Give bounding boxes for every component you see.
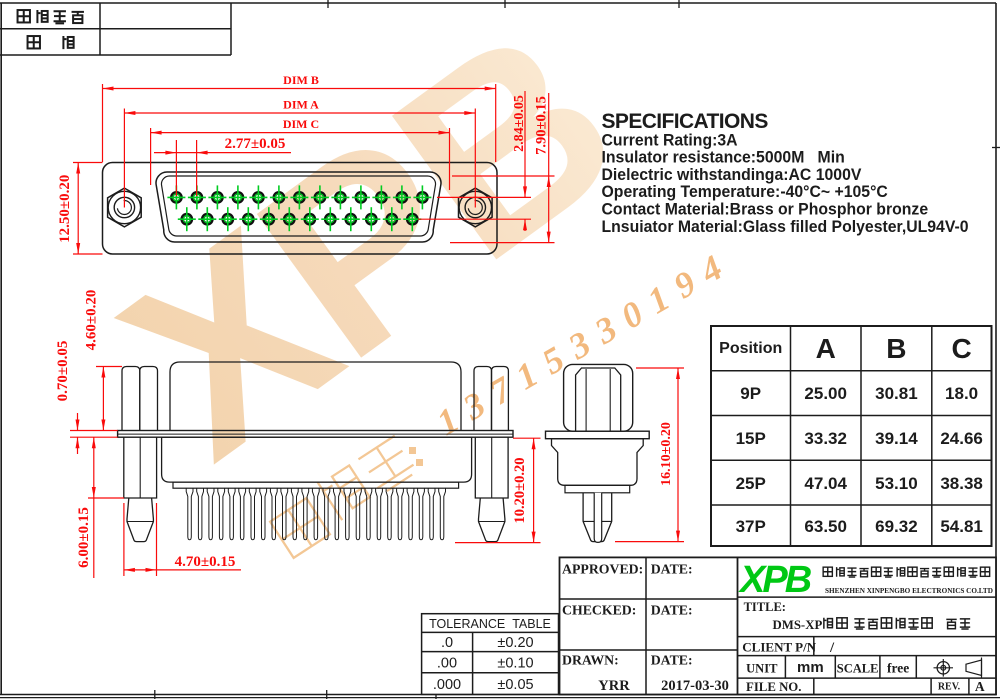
svg-text:12.50±0.20: 12.50±0.20 <box>57 175 73 243</box>
svg-text:/: / <box>829 640 835 656</box>
svg-text:TITLE:: TITLE: <box>744 600 786 614</box>
svg-text:16.10±0.20: 16.10±0.20 <box>659 422 674 486</box>
svg-text:6.00±0.15: 6.00±0.15 <box>76 507 92 568</box>
svg-text:53.10: 53.10 <box>875 474 918 493</box>
svg-text:33.32: 33.32 <box>804 429 847 448</box>
svg-text:2.77±0.05: 2.77±0.05 <box>225 136 286 152</box>
svg-text:DATE:: DATE: <box>651 562 693 577</box>
svg-text:C: C <box>951 333 971 364</box>
svg-text:25.00: 25.00 <box>804 384 847 403</box>
svg-text:25P: 25P <box>736 474 766 493</box>
svg-text:TOLERANCE TABLE: TOLERANCE TABLE <box>429 617 551 631</box>
svg-text:47.04: 47.04 <box>804 474 847 493</box>
svg-text:Current Rating:3A: Current Rating:3A <box>602 131 738 150</box>
svg-text:DMS-XP: DMS-XP <box>773 618 823 632</box>
svg-text:30.81: 30.81 <box>875 384 918 403</box>
svg-text:±0.20: ±0.20 <box>497 635 533 651</box>
svg-text:YRR: YRR <box>598 678 630 694</box>
svg-text:2.84±0.05: 2.84±0.05 <box>512 95 527 152</box>
svg-text:DIM C: DIM C <box>283 117 319 131</box>
svg-text:A: A <box>975 679 985 694</box>
svg-text:18.0: 18.0 <box>945 384 978 403</box>
svg-text:DIM B: DIM B <box>283 73 319 87</box>
svg-text:CLIENT P/N: CLIENT P/N <box>742 640 816 655</box>
svg-text:39.14: 39.14 <box>875 429 918 448</box>
svg-text:free: free <box>887 661 909 676</box>
svg-text:37P: 37P <box>736 517 766 536</box>
svg-text:38.38: 38.38 <box>940 474 983 493</box>
svg-text:Contact Material:Brass or Phos: Contact Material:Brass or Phosphor bronz… <box>602 200 929 219</box>
svg-text:4.60±0.20: 4.60±0.20 <box>84 290 100 351</box>
svg-text:A: A <box>816 333 836 364</box>
svg-text:DRAWN:: DRAWN: <box>562 653 619 668</box>
svg-text:XPB: XPB <box>738 559 812 601</box>
svg-text:±0.05: ±0.05 <box>497 677 533 693</box>
svg-text:24.66: 24.66 <box>940 429 983 448</box>
svg-text:Dielectric withstandinga:AC 10: Dielectric withstandinga:AC 1000V <box>602 165 862 184</box>
svg-text:SCALE: SCALE <box>837 662 879 676</box>
svg-text:54.81: 54.81 <box>940 517 983 536</box>
svg-text:.00: .00 <box>437 656 457 672</box>
svg-text:B: B <box>886 333 906 364</box>
svg-text:±0.10: ±0.10 <box>497 656 533 672</box>
svg-text:.000: .000 <box>433 677 461 693</box>
svg-text:10.20±0.20: 10.20±0.20 <box>512 458 528 524</box>
svg-text:.0: .0 <box>441 635 453 651</box>
svg-text:Position: Position <box>719 340 782 357</box>
svg-text:7.90±0.15: 7.90±0.15 <box>534 96 550 155</box>
svg-text:15P: 15P <box>736 429 766 448</box>
svg-text:69.32: 69.32 <box>875 517 918 536</box>
svg-text:CHECKED:: CHECKED: <box>562 603 636 618</box>
svg-text:9P: 9P <box>740 384 761 403</box>
svg-text:DIM A: DIM A <box>283 98 319 112</box>
svg-text:UNIT: UNIT <box>746 662 778 676</box>
svg-text:SHENZHEN XINPENGBO ELECTRONICS: SHENZHEN XINPENGBO ELECTRONICS CO.LTD <box>825 587 993 595</box>
svg-text:REV.: REV. <box>938 682 961 693</box>
svg-text:APPROVED:: APPROVED: <box>562 562 643 577</box>
svg-text:DATE:: DATE: <box>651 653 693 668</box>
svg-text:mm: mm <box>797 659 824 676</box>
svg-text:SPECIFICATIONS: SPECIFICATIONS <box>602 110 769 133</box>
svg-text:Lnsuiator Material:Glass fille: Lnsuiator Material:Glass filled Polyeste… <box>602 217 969 236</box>
svg-text:Operating Temperature:-40°C~ +: Operating Temperature:-40°C~ +105°C <box>602 183 888 202</box>
svg-text:FILE NO.: FILE NO. <box>746 680 801 694</box>
svg-text:4.70±0.15: 4.70±0.15 <box>175 554 236 570</box>
svg-text:63.50: 63.50 <box>804 517 847 536</box>
svg-text:2017-03-30: 2017-03-30 <box>661 678 729 694</box>
svg-text:DATE:: DATE: <box>651 603 693 618</box>
svg-text:Insulator resistance:5000M M: Insulator resistance:5000M Min <box>602 148 845 167</box>
svg-text:0.70±0.05: 0.70±0.05 <box>55 341 71 402</box>
